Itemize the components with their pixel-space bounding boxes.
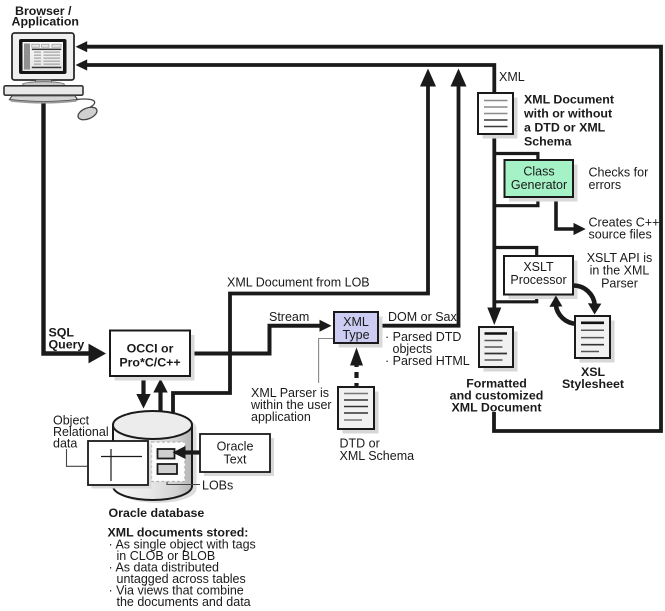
svg-text:XML Document: XML Document [452, 401, 542, 415]
svg-text:XML Document from LOB: XML Document from LOB [227, 275, 370, 289]
svg-text:Oracle database: Oracle database [109, 506, 205, 520]
svg-text:XML Schema: XML Schema [340, 449, 415, 463]
svg-text:OCCI or: OCCI or [127, 341, 174, 355]
svg-text:a DTD or XML: a DTD or XML [524, 121, 606, 135]
svg-text:source files: source files [589, 228, 652, 242]
svg-text:data: data [53, 436, 77, 450]
svg-text:Pro*C/C++: Pro*C/C++ [119, 355, 180, 369]
svg-text:Generator: Generator [511, 178, 567, 192]
svg-text:Processor: Processor [510, 273, 566, 287]
svg-text:Class: Class [523, 164, 554, 178]
svg-text:Application: Application [12, 14, 79, 28]
svg-text:XSLT: XSLT [523, 260, 554, 274]
svg-text:Stream: Stream [269, 310, 309, 324]
svg-text:Oracle: Oracle [217, 439, 254, 453]
svg-text:application: application [251, 410, 311, 424]
svg-text:Stylesheet: Stylesheet [562, 377, 624, 391]
svg-text:· Parsed HTML: · Parsed HTML [385, 354, 470, 368]
svg-text:Parser: Parser [601, 276, 638, 290]
svg-text:XML: XML [499, 70, 525, 84]
svg-text:Schema: Schema [524, 135, 572, 149]
svg-text:errors: errors [589, 178, 622, 192]
svg-text:Query: Query [49, 338, 85, 352]
svg-text:DOM or Sax: DOM or Sax [388, 310, 458, 324]
svg-text:Text: Text [224, 452, 247, 466]
svg-text:XML Document: XML Document [524, 93, 614, 107]
svg-text:with or without: with or without [523, 107, 612, 121]
svg-text:LOBs: LOBs [202, 479, 233, 493]
svg-text:Type: Type [342, 328, 369, 342]
svg-text:the documents and data: the documents and data [117, 595, 251, 609]
